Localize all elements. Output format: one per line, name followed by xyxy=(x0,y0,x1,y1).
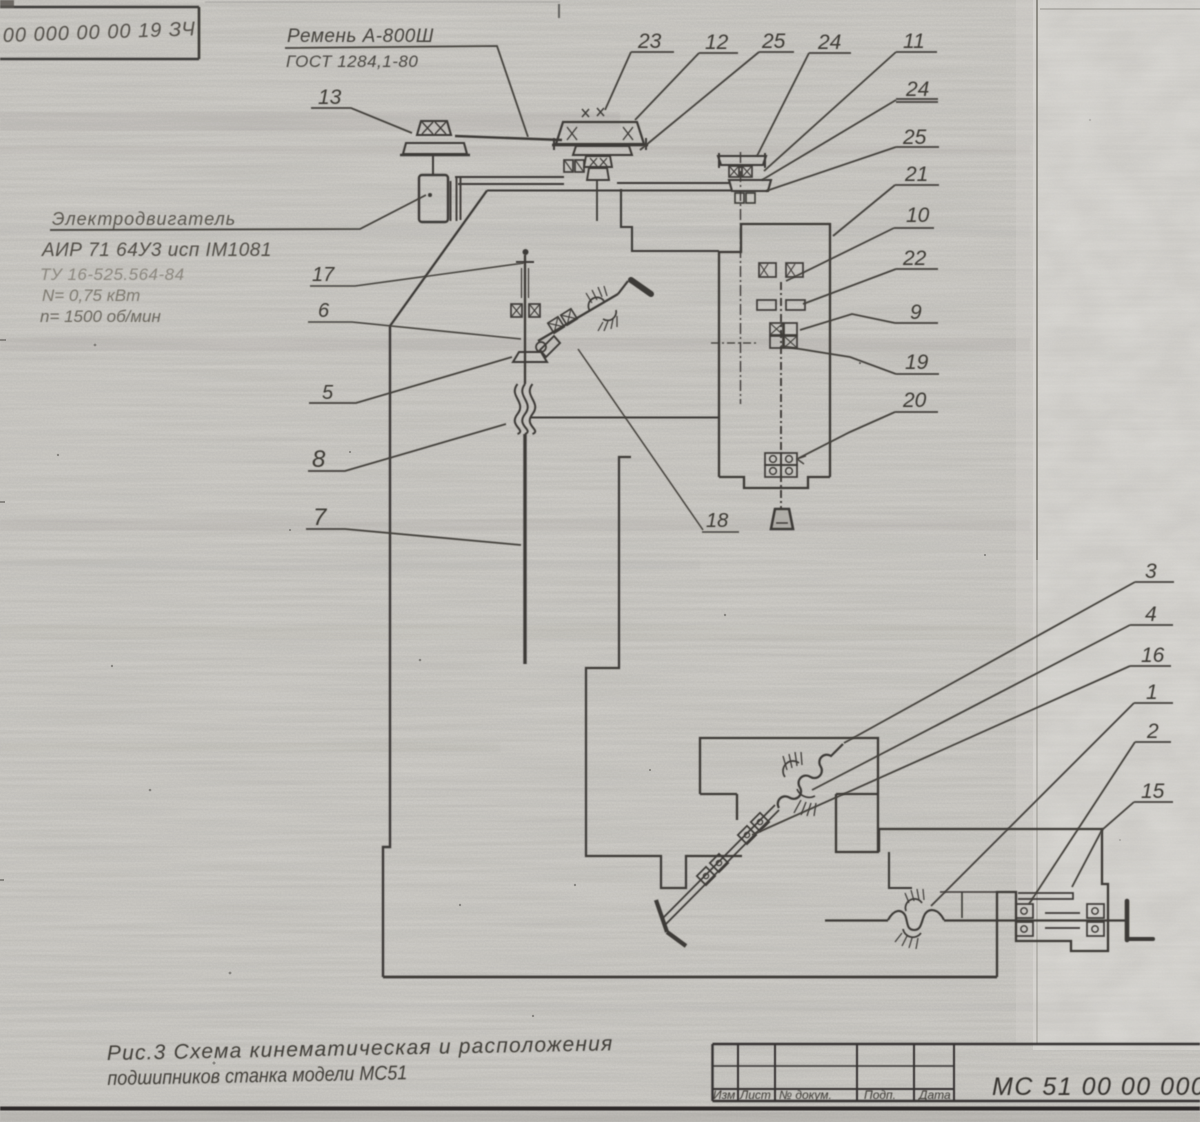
svg-text:6: 6 xyxy=(318,300,330,322)
svg-text:10: 10 xyxy=(906,204,930,227)
svg-text:23: 23 xyxy=(637,30,662,53)
svg-text:21: 21 xyxy=(904,163,928,186)
svg-text:8: 8 xyxy=(312,446,326,473)
svg-text:25: 25 xyxy=(902,126,927,149)
svg-text:24: 24 xyxy=(905,78,929,101)
svg-text:17: 17 xyxy=(312,264,335,286)
svg-text:2: 2 xyxy=(1146,720,1159,743)
svg-text:ТУ 16-525.564-84: ТУ 16-525.564-84 xyxy=(40,265,185,284)
svg-text:№ докум.: № докум. xyxy=(779,1088,832,1102)
svg-text:18: 18 xyxy=(706,510,728,532)
svg-text:Дата: Дата xyxy=(917,1088,951,1102)
svg-text:25: 25 xyxy=(761,30,786,53)
svg-text:ГОСТ 1284,1-80: ГОСТ 1284,1-80 xyxy=(286,52,418,71)
svg-text:7: 7 xyxy=(313,504,328,531)
svg-text:9: 9 xyxy=(910,301,922,324)
svg-text:Лист: Лист xyxy=(739,1088,771,1102)
svg-text:20: 20 xyxy=(902,389,927,412)
svg-text:АИР 71 64У3 исп IM1081: АИР 71 64У3 исп IM1081 xyxy=(41,240,272,261)
svg-text:24: 24 xyxy=(817,31,841,54)
svg-text:12: 12 xyxy=(705,31,729,54)
svg-text:4: 4 xyxy=(1145,603,1157,626)
svg-text:Изм: Изм xyxy=(713,1088,735,1102)
svg-text:n= 1500 об/мин: n= 1500 об/мин xyxy=(40,307,161,326)
svg-text:Ремень А-800Ш: Ремень А-800Ш xyxy=(287,26,434,47)
svg-text:Подп.: Подп. xyxy=(864,1088,896,1102)
svg-text:Электродвигатель: Электродвигатель xyxy=(52,209,236,229)
svg-text:22: 22 xyxy=(902,247,927,270)
svg-text:1: 1 xyxy=(1146,681,1158,704)
svg-text:19: 19 xyxy=(905,351,929,374)
svg-text:13: 13 xyxy=(318,86,342,109)
svg-text:11: 11 xyxy=(903,30,925,53)
svg-text:МС 51 00 00 000 0: МС 51 00 00 000 0 xyxy=(992,1073,1200,1101)
svg-text:15: 15 xyxy=(1141,780,1165,803)
svg-text:16: 16 xyxy=(1141,644,1165,667)
svg-text:N= 0,75 кВт: N= 0,75 кВт xyxy=(42,286,140,305)
svg-text:3: 3 xyxy=(1145,560,1157,583)
svg-text:5: 5 xyxy=(322,382,334,404)
